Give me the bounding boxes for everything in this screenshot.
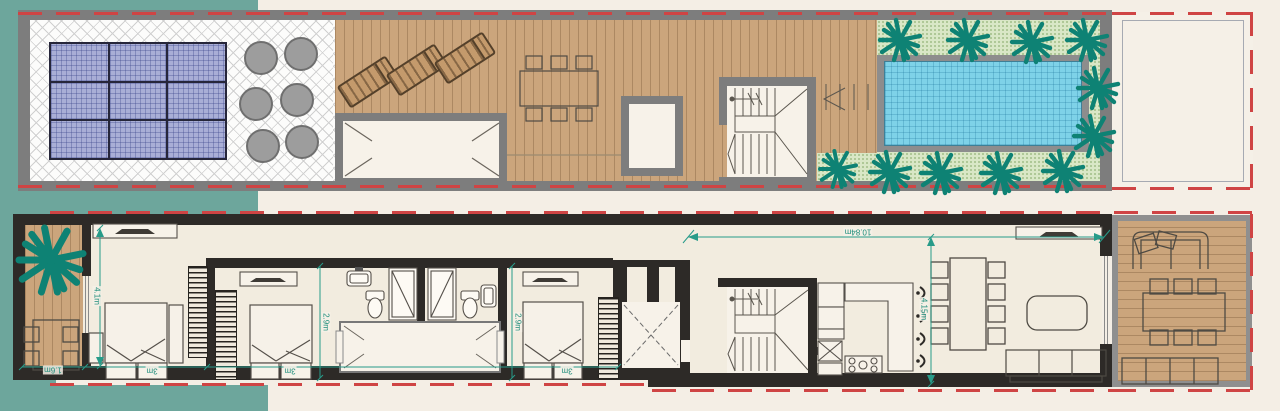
elevator-icon [622, 302, 680, 368]
solar-panel [168, 44, 225, 81]
solar-panel-array [49, 42, 227, 160]
elevator-door [681, 340, 690, 362]
round-planter [246, 129, 280, 163]
solar-panel [51, 44, 108, 81]
outdoor-deck [1112, 215, 1252, 387]
property-line [50, 383, 656, 386]
property-line [1112, 187, 1253, 190]
roof-stairwell [727, 86, 807, 177]
wardrobe [188, 266, 208, 358]
exterior-wall [648, 373, 1112, 387]
swimming-pool [884, 61, 1082, 146]
dim-bedroom1-width: 3m [145, 367, 158, 376]
round-planter [280, 83, 314, 117]
service-duct [659, 267, 675, 303]
dim-living-length: 10.84m [844, 228, 873, 237]
roof-skylight [335, 113, 507, 186]
stair-bulkhead-wall [719, 77, 816, 86]
round-planter [239, 87, 273, 121]
round-planter [244, 41, 278, 75]
property-line [1112, 12, 1253, 15]
living-room-wall [1100, 214, 1112, 256]
stairwell [727, 287, 808, 373]
property-line [18, 185, 1112, 188]
stair-bulkhead-wall [719, 77, 727, 125]
property-line [1250, 12, 1253, 190]
property-line [18, 12, 1112, 15]
floor-interior [650, 225, 1102, 374]
terrace-wall [82, 214, 91, 276]
solar-panel [110, 44, 167, 81]
stair-bulkhead-wall [719, 177, 816, 185]
stair-bulkhead-wall [807, 77, 816, 185]
living-room-wall [1100, 344, 1112, 387]
dim-terrace-table: 1.6m [43, 366, 63, 375]
property-line [1250, 214, 1253, 390]
dim-living-depth: 4.15m [920, 297, 929, 321]
solar-panel [168, 121, 225, 158]
dim-bedroom1-depth: 4.1m [93, 286, 102, 306]
property-line [1112, 389, 1252, 392]
dim-bathroom1-depth: 2.9m [322, 312, 331, 332]
solar-panel [110, 83, 167, 120]
neighbor-plot-outline [1122, 20, 1244, 182]
property-line [652, 389, 1112, 392]
dim-bathroom2-depth: 2.9m [514, 312, 523, 332]
exterior-wall [13, 214, 25, 380]
interior-wall [498, 268, 507, 380]
exterior-wall [18, 214, 1112, 225]
solar-panel [168, 83, 225, 120]
stair-wall [718, 278, 817, 287]
elevator-bulkhead [621, 96, 683, 176]
site-garden-area [0, 385, 268, 411]
solar-panel [51, 83, 108, 120]
service-duct [627, 267, 647, 303]
front-terrace [25, 225, 83, 367]
pool-hedge [817, 153, 879, 181]
bathroom-divider-wall [417, 268, 425, 325]
property-line [50, 211, 1252, 214]
solar-panel [51, 121, 108, 158]
round-planter [284, 37, 318, 71]
floor-plan-drawing: 4.1m 3m 3m 3m 1.6m 2.9m 2.9m 10.84m 4.15… [0, 0, 1280, 411]
terrace-wall [82, 333, 91, 377]
wardrobe [215, 290, 237, 380]
round-planter [285, 125, 319, 159]
dim-bedroom3-width: 3m [560, 367, 573, 376]
interior-wall [206, 258, 613, 268]
dim-bedroom2-width: 3m [283, 367, 296, 376]
wardrobe [598, 297, 619, 379]
solar-panel [110, 121, 167, 158]
stair-wall [808, 278, 817, 373]
